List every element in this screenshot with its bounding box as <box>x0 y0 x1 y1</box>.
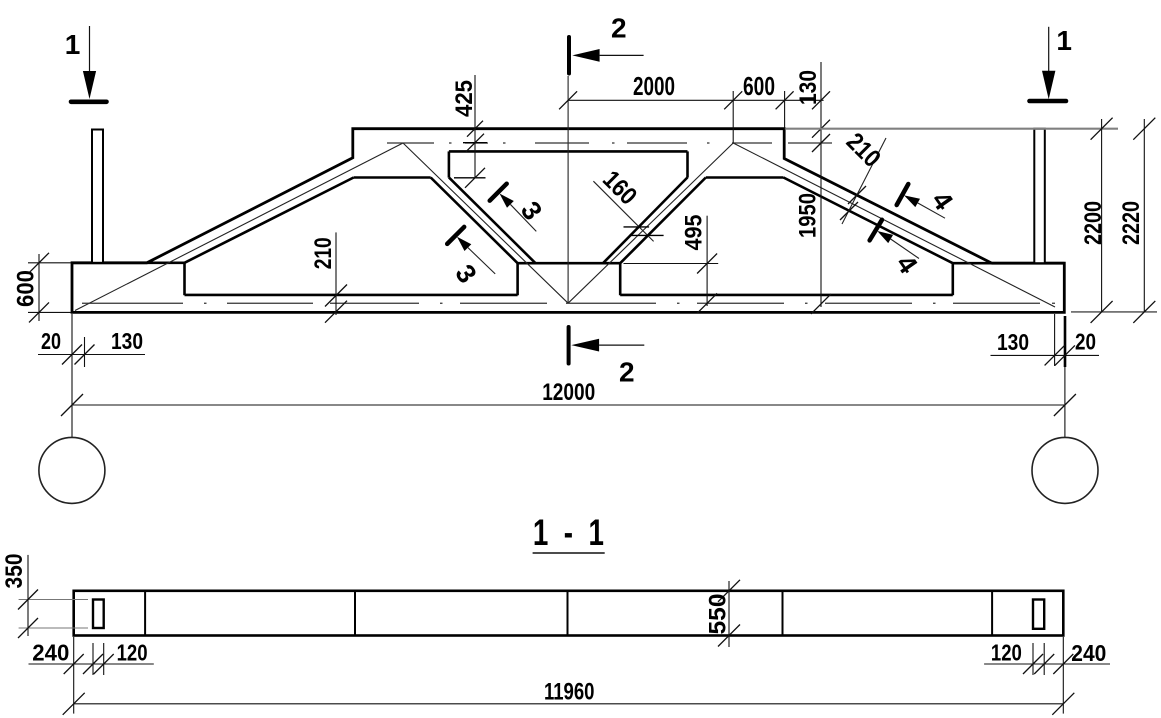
svg-text:120: 120 <box>117 639 148 665</box>
svg-text:425: 425 <box>451 80 478 117</box>
svg-text:4: 4 <box>890 249 923 279</box>
svg-text:12000: 12000 <box>542 379 595 406</box>
svg-text:1: 1 <box>1056 25 1072 56</box>
svg-text:210: 210 <box>310 237 337 269</box>
svg-text:240: 240 <box>1071 640 1106 666</box>
svg-text:1 - 1: 1 - 1 <box>533 512 604 553</box>
svg-text:3: 3 <box>515 196 548 226</box>
svg-text:2: 2 <box>619 357 635 388</box>
svg-text:2200: 2200 <box>1080 201 1107 245</box>
svg-text:495: 495 <box>681 215 708 251</box>
svg-text:11960: 11960 <box>544 679 595 706</box>
svg-text:600: 600 <box>13 270 40 307</box>
svg-text:160: 160 <box>597 165 642 210</box>
svg-text:130: 130 <box>795 70 822 105</box>
svg-text:20: 20 <box>41 328 61 354</box>
svg-text:3: 3 <box>449 259 482 289</box>
svg-text:1950: 1950 <box>795 193 822 238</box>
svg-text:1: 1 <box>65 29 81 60</box>
svg-text:240: 240 <box>32 639 69 665</box>
svg-text:600: 600 <box>743 71 775 101</box>
svg-text:120: 120 <box>991 639 1022 665</box>
svg-text:2000: 2000 <box>633 71 675 101</box>
svg-text:20: 20 <box>1075 329 1096 355</box>
svg-text:2: 2 <box>611 12 627 43</box>
svg-text:550: 550 <box>705 594 732 635</box>
svg-text:4: 4 <box>926 186 959 216</box>
svg-text:2220: 2220 <box>1118 201 1145 245</box>
svg-text:350: 350 <box>1 554 28 589</box>
svg-text:210: 210 <box>841 128 886 173</box>
svg-text:130: 130 <box>111 328 143 354</box>
svg-text:130: 130 <box>997 329 1029 355</box>
